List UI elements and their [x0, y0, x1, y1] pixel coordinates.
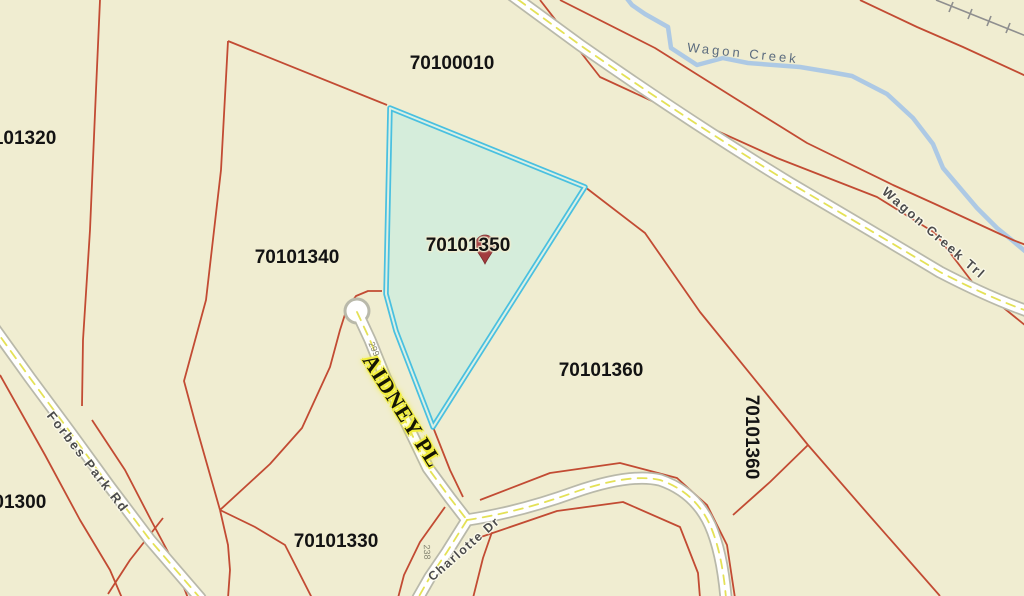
railroad-track	[936, 0, 1024, 36]
parcel-label-70101360-rotated: 70101360	[740, 395, 762, 480]
address-label-238: 238	[422, 544, 433, 559]
parcel-label-70101350: 70101350	[426, 235, 511, 257]
parcel-label-70101340: 70101340	[255, 247, 340, 269]
parcel-label-70101330: 70101330	[294, 531, 379, 553]
creek-wagon-creek	[625, 0, 1024, 252]
map-vector-layer	[0, 0, 1024, 596]
parcel-label-70100010: 70100010	[410, 53, 495, 75]
parcel-label-70101360: 70101360	[559, 360, 644, 382]
selected-parcel-fill[interactable]	[386, 108, 585, 427]
parcel-label-70101300: 70101300	[0, 492, 46, 514]
parcel-label-70101320: 70101320	[0, 128, 56, 150]
parcel-map-canvas[interactable]: 70100010 70101320 70101340 70101350 7010…	[0, 0, 1024, 596]
selected-parcel-polygon[interactable]	[386, 108, 585, 427]
